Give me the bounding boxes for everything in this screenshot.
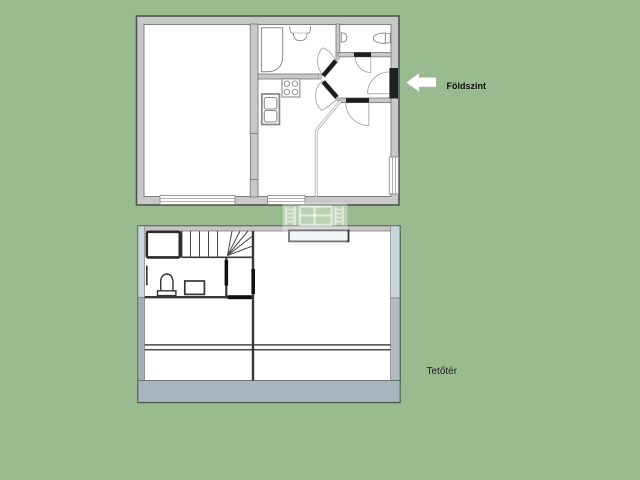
svg-text:Tetőtér: Tetőtér <box>427 366 458 377</box>
svg-text:Földszint: Földszint <box>447 81 487 91</box>
